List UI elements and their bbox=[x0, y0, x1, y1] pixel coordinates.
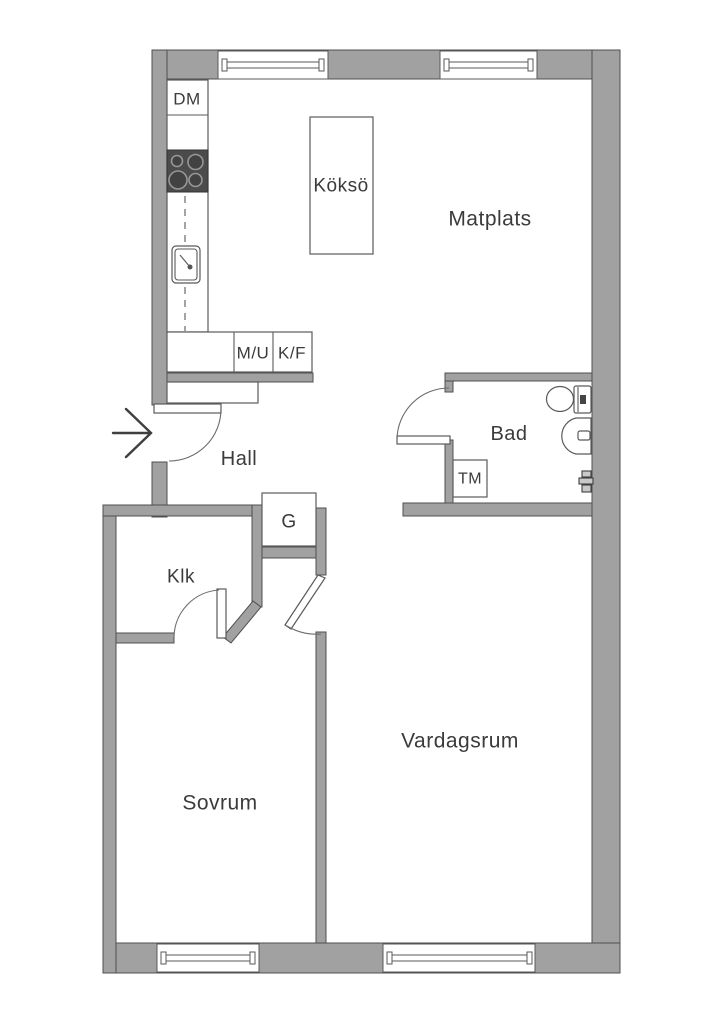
room-label-hall: Hall bbox=[221, 448, 257, 470]
stove-icon bbox=[167, 150, 208, 192]
wall-bad-bottom bbox=[403, 503, 592, 516]
wall-nook bbox=[258, 547, 318, 558]
wall-bad-left-upper bbox=[445, 381, 453, 392]
room-label-bad: Bad bbox=[490, 423, 527, 445]
washbasin-icon bbox=[562, 418, 591, 454]
wall-left-lower bbox=[103, 505, 116, 973]
wall-sovrum-vardagsrum bbox=[316, 632, 326, 943]
wall-right bbox=[592, 50, 620, 973]
room-label-sovrum: Sovrum bbox=[182, 792, 257, 815]
wall-klk-right bbox=[252, 505, 262, 607]
fridge-freezer-label: K/F bbox=[278, 344, 306, 363]
island-label: Köksö bbox=[313, 176, 368, 197]
water-tap-icon bbox=[579, 471, 593, 492]
bathroom-fittings bbox=[547, 386, 594, 492]
washing-machine-label: TM bbox=[458, 471, 482, 488]
wall-left-upper bbox=[152, 50, 167, 405]
room-label-klk: Klk bbox=[167, 567, 195, 588]
wall-bad-top bbox=[445, 373, 592, 381]
window-sovrum bbox=[157, 944, 259, 972]
sovrum-door bbox=[285, 575, 325, 634]
room-label-vardagsrum: Vardagsrum bbox=[401, 730, 519, 753]
sink-icon bbox=[172, 246, 200, 283]
wall-kitchen-hall bbox=[167, 373, 313, 382]
kitchen-fittings bbox=[167, 80, 373, 403]
klk-door bbox=[174, 589, 226, 638]
bathroom-door bbox=[397, 388, 450, 444]
wardrobe-label: G bbox=[281, 512, 296, 533]
micro-oven-label: M/U bbox=[237, 344, 270, 363]
wall-sovrum-top bbox=[116, 633, 174, 643]
window-vardagsrum bbox=[383, 944, 535, 972]
dishwasher-label: DM bbox=[173, 90, 200, 109]
toilet-icon bbox=[547, 386, 592, 413]
wall-hall-klk bbox=[103, 505, 262, 516]
floor-plan-drawing: DM Köksö Matplats M/U K/F Hall Bad TM G … bbox=[0, 0, 724, 1024]
hall-closet bbox=[167, 382, 258, 403]
kitchen-counter-column bbox=[167, 80, 208, 332]
window-matplats bbox=[440, 51, 537, 79]
window-kitchen bbox=[218, 51, 328, 79]
wall-right-of-g bbox=[316, 508, 326, 575]
entrance-door bbox=[154, 404, 221, 461]
floor-plan-page: DM Köksö Matplats M/U K/F Hall Bad TM G … bbox=[0, 0, 724, 1024]
room-label-matplats: Matplats bbox=[448, 208, 531, 231]
entrance-arrow-icon bbox=[113, 409, 151, 457]
wall-klk-diagonal bbox=[223, 601, 261, 643]
